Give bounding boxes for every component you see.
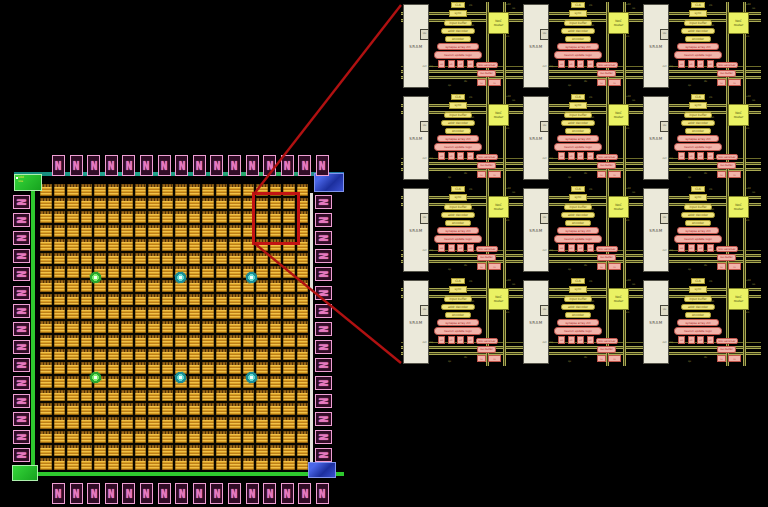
router-label: router: [614, 299, 624, 303]
signal-label: vdd: [626, 279, 631, 282]
core-tile: [297, 307, 309, 319]
signal-label: vdd: [746, 95, 751, 98]
unit-block: u0: [678, 336, 685, 344]
core-tile: [202, 417, 214, 429]
signal-label: clk: [589, 4, 593, 7]
core-tile: [135, 390, 147, 402]
noc-serializer-block: NoC serializer: [476, 154, 498, 161]
unit-block: u1: [448, 244, 455, 252]
sram-label: SRAM: [529, 228, 542, 233]
core-tile: [297, 431, 309, 443]
pad-glyph: N: [108, 159, 115, 172]
tile: SRAM I/O ctrl CLK sync input buffer addr…: [401, 186, 519, 274]
unit-block: u2: [577, 152, 584, 160]
core-tile: [121, 239, 133, 251]
router-label: router: [734, 23, 744, 27]
core-tile: [283, 307, 295, 319]
signal-label: q0: [688, 176, 691, 179]
unit-block: u3: [467, 244, 474, 252]
core-tile: [202, 184, 214, 196]
pad-glyph: N: [231, 487, 238, 500]
signal-label: ack: [745, 127, 749, 130]
output-buffer-block: out buffer: [477, 162, 496, 169]
synapse-ctrl-block: synapse array ctrl: [557, 319, 599, 326]
sram-block: SRAM: [403, 280, 429, 364]
core-tile: [229, 307, 241, 319]
clock-block: CLK: [691, 2, 705, 8]
core-tile: [270, 335, 282, 347]
unit-block: u1: [568, 336, 575, 344]
rx-block: rx: [488, 355, 501, 363]
core-tile: [256, 349, 268, 361]
io-pad: N: [158, 483, 171, 504]
signal-label: en: [471, 300, 474, 303]
pad-glyph: N: [15, 199, 28, 206]
core-tile: [148, 376, 160, 388]
core-tile: [94, 390, 106, 402]
unit-block: u3: [467, 152, 474, 160]
sram-label: SRAM: [409, 136, 422, 141]
sram-block: SRAM: [643, 4, 669, 88]
core-tile: [189, 280, 201, 292]
signal-label: ack: [625, 219, 629, 222]
signal-label: rst: [512, 283, 515, 286]
clock-block: CLK: [451, 278, 465, 284]
synapse-ctrl-block: synapse array ctrl: [677, 319, 719, 326]
clock-block: CLK: [571, 2, 585, 8]
core-tile: [81, 294, 93, 306]
noc-router-block: NoC router: [728, 288, 749, 310]
sram-port-label: ctrl: [660, 65, 669, 68]
io-pad: N: [315, 322, 332, 336]
rx-block: rx: [488, 171, 501, 179]
core-tile: [189, 266, 201, 278]
core-tile: [189, 362, 201, 374]
core-tile: [40, 266, 52, 278]
core-tile: [162, 266, 174, 278]
sram-port-label: ctrl: [420, 157, 429, 160]
pad-glyph: N: [266, 159, 273, 172]
synapse-ctrl-block: synapse array ctrl: [437, 227, 479, 234]
signal-label: q0: [448, 176, 451, 179]
tx-block: tx: [477, 79, 486, 87]
core-tile: [67, 349, 79, 361]
signal-label: rst: [512, 7, 515, 10]
core-tile: [256, 335, 268, 347]
core-tile: [202, 349, 214, 361]
sram-port-label: ctrl: [660, 249, 669, 252]
core-tile: [162, 403, 174, 415]
sram-label: SRAM: [409, 320, 422, 325]
core-tile: [108, 390, 120, 402]
noc-router-block: NoC router: [728, 104, 749, 126]
signal-label: vdd: [626, 3, 631, 6]
core-tile: [148, 431, 160, 443]
core-tile: [216, 321, 228, 333]
io-pad: N: [175, 155, 188, 176]
pad-glyph: N: [15, 343, 28, 350]
signal-label: vdd: [746, 187, 751, 190]
signal-label: en: [711, 300, 714, 303]
noc-router-block: NoC router: [488, 104, 509, 126]
signal-label: q0: [448, 268, 451, 271]
io-pad: N: [13, 267, 30, 281]
io-interface-block: I/O: [420, 305, 429, 316]
core-tile: [162, 184, 174, 196]
core-tile: [256, 307, 268, 319]
unit-block: u2: [697, 244, 704, 252]
encoder-block: encoder: [445, 36, 471, 42]
pad-glyph: N: [55, 159, 62, 172]
pad-glyph: N: [15, 289, 28, 296]
decoder-block: addr decoder: [441, 304, 475, 311]
core-tile: [121, 458, 133, 470]
core-tile: [216, 280, 228, 292]
core-tile: [256, 403, 268, 415]
signal-label: req: [669, 157, 673, 160]
io-pad: N: [140, 483, 153, 504]
core-tile: [175, 184, 187, 196]
core-tile: [54, 362, 66, 374]
core-tile: [135, 294, 147, 306]
io-pad: N: [13, 249, 30, 263]
tx-block: tx: [477, 171, 486, 179]
sram-label: SRAM: [409, 228, 422, 233]
tile: SRAM I/O ctrl CLK sync input buffer addr…: [401, 94, 519, 182]
core-tile: [135, 445, 147, 457]
core-tile: [67, 335, 79, 347]
pad-glyph: N: [55, 487, 62, 500]
core-tile: [121, 321, 133, 333]
io-interface-block: I/O: [660, 305, 669, 316]
core-tile: [216, 184, 228, 196]
core-tile: [67, 321, 79, 333]
input-buffer-block: input buffer: [444, 112, 472, 118]
encoder-block: encoder: [565, 220, 591, 226]
io-pad: N: [158, 155, 171, 176]
clock-block: CLK: [451, 94, 465, 100]
sync-block: sync: [449, 286, 467, 293]
unit-block: u3: [587, 336, 594, 344]
core-tile: [229, 390, 241, 402]
core-tile: [216, 431, 228, 443]
core-tile: [148, 198, 160, 210]
sram-label: SRAM: [649, 320, 662, 325]
pad-glyph: N: [302, 487, 309, 500]
output-buffer-block: out buffer: [597, 70, 616, 77]
sram-port-label: ctrl: [540, 65, 549, 68]
input-buffer-block: input buffer: [684, 20, 712, 26]
sram-port-label: ctrl: [420, 341, 429, 344]
core-tile: [216, 294, 228, 306]
pad-glyph: N: [317, 343, 330, 350]
signal-label: rst: [512, 99, 515, 102]
core-tile: [189, 253, 201, 265]
core-tile: [108, 445, 120, 457]
core-tile: [189, 349, 201, 361]
core-tile: [297, 390, 309, 402]
router-label: router: [614, 207, 624, 211]
teal-marker: [245, 371, 258, 384]
signal-label: d0: [464, 356, 467, 359]
core-tile: [189, 376, 201, 388]
pad-glyph: N: [231, 159, 238, 172]
corner-block-top-left: vdd vss: [14, 174, 42, 191]
pad-glyph: N: [15, 434, 28, 441]
pad-glyph: N: [15, 325, 28, 332]
teal-marker: [245, 271, 258, 284]
core-tile: [135, 266, 147, 278]
core-tile: [108, 211, 120, 223]
rx-block: rx: [608, 355, 621, 363]
io-pad: N: [52, 155, 65, 176]
core-tile: [148, 390, 160, 402]
pad-glyph: N: [317, 434, 330, 441]
core-tile: [256, 417, 268, 429]
core-tile: [297, 280, 309, 292]
decoder-block: addr decoder: [681, 304, 715, 311]
core-tile: [148, 362, 160, 374]
input-buffer-block: input buffer: [684, 112, 712, 118]
signal-label: req: [549, 157, 553, 160]
io-pad: N: [315, 340, 332, 354]
core-tile: [202, 335, 214, 347]
core-tile: [229, 321, 241, 333]
router-label: router: [734, 115, 744, 119]
core-tile: [54, 349, 66, 361]
signal-label: en: [591, 208, 594, 211]
core-tile: [67, 239, 79, 251]
io-pad: N: [13, 322, 30, 336]
core-tile: [148, 253, 160, 265]
signal-label: clk: [709, 4, 713, 7]
signal-label: req: [429, 249, 433, 252]
core-tile: [67, 431, 79, 443]
core-tile: [54, 225, 66, 237]
sync-block: sync: [689, 286, 707, 293]
io-pad: N: [281, 155, 294, 176]
core-tile: [175, 321, 187, 333]
core-tile: [67, 403, 79, 415]
core-tile: [243, 417, 255, 429]
tx-block: tx: [717, 263, 726, 271]
sram-label: SRAM: [529, 44, 542, 49]
noc-router-block: NoC router: [728, 12, 749, 34]
core-tile: [148, 307, 160, 319]
core-tile: [297, 335, 309, 347]
core-tile: [297, 266, 309, 278]
core-tile: [135, 362, 147, 374]
core-tile: [148, 225, 160, 237]
core-tile: [283, 376, 295, 388]
io-pad: N: [315, 249, 332, 263]
unit-block: u3: [467, 60, 474, 68]
core-tile: [81, 198, 93, 210]
core-tile: [108, 184, 120, 196]
synapse-ctrl-block: synapse array ctrl: [557, 43, 599, 50]
tx-block: tx: [717, 171, 726, 179]
core-tile: [202, 362, 214, 374]
signal-label: ack: [745, 311, 749, 314]
core-tile: [189, 403, 201, 415]
unit-block: u0: [678, 60, 685, 68]
unit-block: u2: [457, 244, 464, 252]
input-buffer-block: input buffer: [564, 20, 592, 26]
pad-glyph: N: [196, 487, 203, 500]
unit-block: u1: [448, 336, 455, 344]
pad-glyph: N: [15, 398, 28, 405]
decoder-block: addr decoder: [681, 212, 715, 219]
noc-router-block: NoC router: [608, 12, 629, 34]
router-label: router: [494, 207, 504, 211]
signal-label: q0: [448, 84, 451, 87]
core-tile: [40, 335, 52, 347]
tile: SRAM I/O ctrl CLK sync input buffer addr…: [521, 94, 639, 182]
core-tile: [297, 376, 309, 388]
output-buffer-block: out buffer: [477, 346, 496, 353]
io-pad: N: [315, 358, 332, 372]
core-tile: [67, 198, 79, 210]
core-tile: [148, 266, 160, 278]
core-tile: [54, 266, 66, 278]
core-tile: [162, 307, 174, 319]
core-tile: [108, 335, 120, 347]
signal-label: ack: [625, 311, 629, 314]
core-tile: [243, 253, 255, 265]
signal-label: ack: [625, 35, 629, 38]
core-tile: [229, 198, 241, 210]
signal-label: d0: [464, 80, 467, 83]
core-tile: [121, 445, 133, 457]
core-tile: [40, 390, 52, 402]
sram-label: SRAM: [529, 136, 542, 141]
core-tile: [175, 211, 187, 223]
core-tile: [270, 321, 282, 333]
core-tile: [283, 403, 295, 415]
signal-label: en: [471, 208, 474, 211]
core-tile: [162, 376, 174, 388]
core-tile: [135, 184, 147, 196]
core-tile: [202, 266, 214, 278]
core-tile: [40, 253, 52, 265]
core-tile: [216, 376, 228, 388]
core-tile: [54, 321, 66, 333]
signal-label: req: [669, 249, 673, 252]
pad-glyph: N: [73, 487, 80, 500]
unit-block: u1: [448, 152, 455, 160]
io-pad: N: [316, 155, 329, 176]
signal-label: en: [591, 24, 594, 27]
core-tile: [148, 403, 160, 415]
core-tile: [202, 307, 214, 319]
core-tile: [54, 239, 66, 251]
signal-label: q0: [448, 360, 451, 363]
corner-block-bottom-right: [308, 462, 336, 478]
output-buffer-block: out buffer: [597, 162, 616, 169]
core-tile: [189, 307, 201, 319]
signal-label: ack: [745, 35, 749, 38]
pad-glyph: N: [249, 159, 256, 172]
core-tile: [270, 376, 282, 388]
rx-block: rx: [728, 79, 741, 87]
core-tile: [54, 417, 66, 429]
synapse-ctrl-block: synapse array ctrl: [557, 135, 599, 142]
core-tile: [108, 349, 120, 361]
tx-block: tx: [717, 79, 726, 87]
sram-block: SRAM: [643, 280, 669, 364]
core-tile: [121, 280, 133, 292]
pad-glyph: N: [15, 271, 28, 278]
core-tile: [162, 321, 174, 333]
core-tile: [121, 390, 133, 402]
io-interface-block: I/O: [660, 213, 669, 224]
core-tile: [216, 445, 228, 457]
pad-glyph: N: [143, 487, 150, 500]
core-tile: [202, 376, 214, 388]
pad-glyph: N: [317, 380, 330, 387]
core-tile: [40, 458, 52, 470]
noc-router-block: NoC router: [608, 104, 629, 126]
core-tile: [175, 335, 187, 347]
core-tile: [67, 390, 79, 402]
io-pad: N: [315, 195, 332, 209]
core-tile: [81, 211, 93, 223]
core-tile: [108, 307, 120, 319]
io-pad: N: [70, 483, 83, 504]
core-tile: [202, 225, 214, 237]
core-tile: [216, 239, 228, 251]
signal-label: req: [549, 341, 553, 344]
core-tile: [81, 225, 93, 237]
core-tile: [283, 458, 295, 470]
signal-label: clk: [589, 280, 593, 283]
io-interface-block: I/O: [540, 213, 549, 224]
core-tile: [81, 335, 93, 347]
io-interface-block: I/O: [420, 213, 429, 224]
pad-glyph: N: [178, 487, 185, 500]
sram-label: SRAM: [649, 136, 662, 141]
unit-block: u3: [707, 244, 714, 252]
core-tile: [162, 253, 174, 265]
pad-glyph: N: [317, 253, 330, 260]
core-tile: [108, 239, 120, 251]
signal-label: clk: [469, 280, 473, 283]
core-tile: [108, 280, 120, 292]
core-tile: [40, 321, 52, 333]
io-pad: N: [122, 483, 135, 504]
io-pad: N: [315, 448, 332, 462]
core-tile: [54, 376, 66, 388]
router-label: router: [494, 299, 504, 303]
core-tile: [283, 266, 295, 278]
core-tile: [202, 294, 214, 306]
sram-port-label: ctrl: [660, 341, 669, 344]
core-tile: [54, 211, 66, 223]
core-tile: [243, 390, 255, 402]
sram-block: SRAM: [643, 96, 669, 180]
signal-label: q0: [688, 360, 691, 363]
io-pad: N: [315, 430, 332, 444]
core-tile: [40, 417, 52, 429]
io-pad: N: [175, 483, 188, 504]
signal-label: rst: [632, 191, 635, 194]
core-tile: [121, 349, 133, 361]
neuron-logic-block: neuron update logic: [674, 51, 722, 59]
unit-block: u1: [568, 152, 575, 160]
core-tile: [270, 403, 282, 415]
core-tile: [189, 390, 201, 402]
core-tile: [40, 211, 52, 223]
